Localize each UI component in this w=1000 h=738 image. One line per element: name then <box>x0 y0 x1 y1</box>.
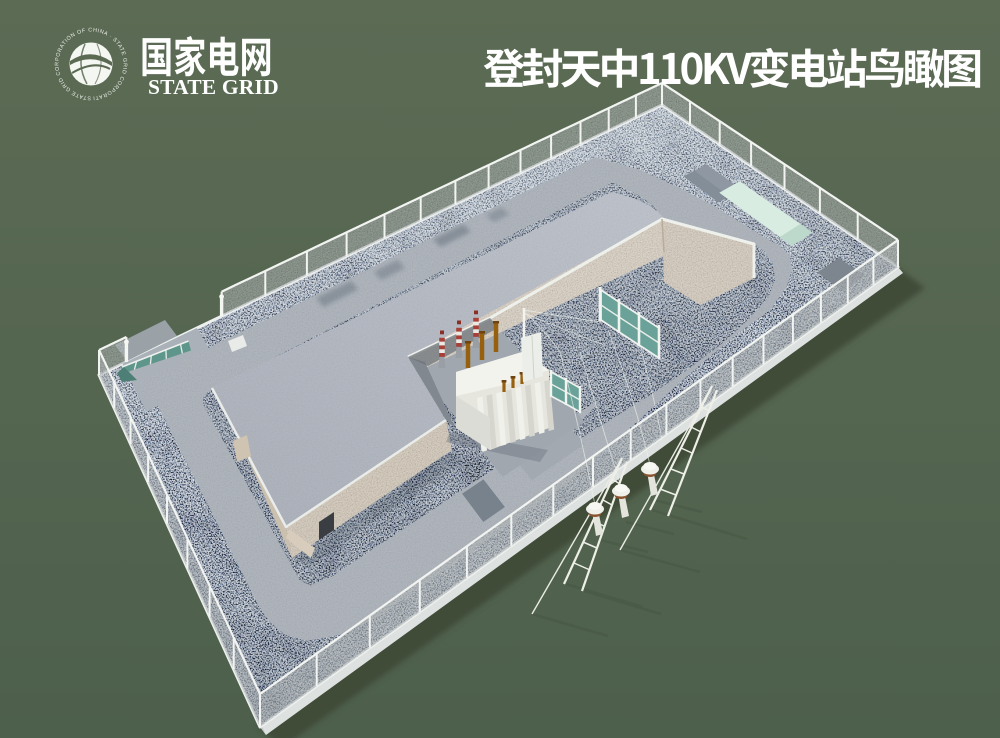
svg-text:STATE GRID: STATE GRID <box>148 75 279 99</box>
